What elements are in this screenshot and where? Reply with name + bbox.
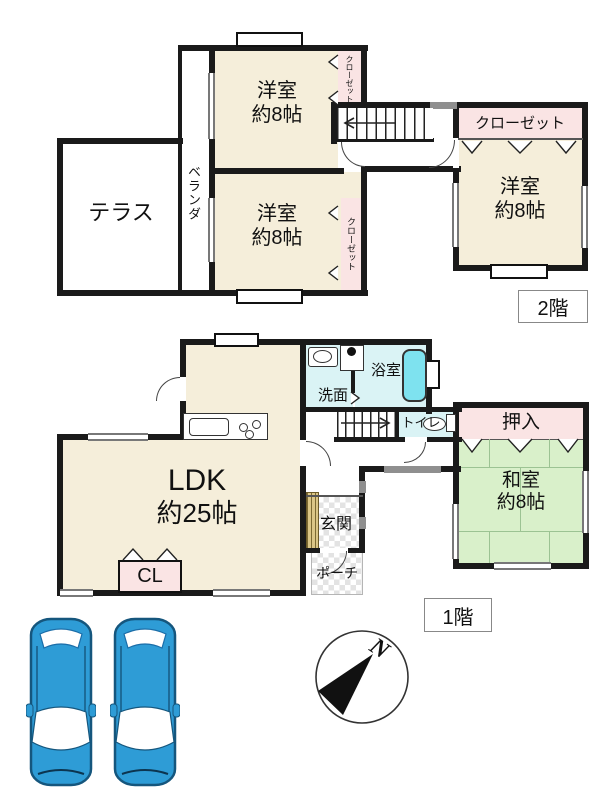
washing-machine-knob-icon (347, 347, 356, 356)
car-icon (26, 616, 96, 788)
room-name: 洋室 (257, 203, 297, 227)
washroom-label: 洗面 (310, 387, 356, 405)
window (452, 504, 459, 559)
window (208, 198, 215, 262)
porch-label: ポーチ (312, 565, 362, 581)
tatami-line (549, 531, 550, 563)
wall (334, 437, 398, 442)
window (452, 183, 459, 247)
window (581, 186, 588, 248)
wall (453, 102, 588, 108)
stairs-direction-arrow (338, 416, 396, 430)
room-2f-sw-label: 洋室 約8帖 (235, 203, 319, 251)
room-size: 約8帖 (497, 492, 546, 514)
ldk-label: LDK 約25帖 (138, 466, 256, 526)
kitchen-sink-icon (189, 418, 229, 436)
car-icon (110, 616, 180, 788)
entrance-step-line (306, 495, 363, 497)
wall (453, 402, 589, 408)
toilet-label: トイレ (399, 415, 443, 431)
wall (359, 466, 365, 553)
compass: N (312, 627, 412, 727)
wall (178, 45, 182, 296)
floor-plan: テラス ベランダ 洋室 約8帖 洋室 約8帖 洋室 約8帖 クローゼット クロー… (0, 0, 613, 800)
bathroom-label: 浴室 (361, 362, 411, 380)
sink-bowl-icon (313, 350, 332, 363)
door-arc (341, 142, 365, 167)
wall (300, 339, 306, 595)
stairs-direction-arrow (340, 116, 400, 130)
window (430, 102, 457, 109)
bay-window (236, 289, 303, 304)
window (359, 517, 366, 529)
room-name: 洋室 (257, 80, 297, 104)
wall (57, 138, 183, 144)
closet-2f-nw-label: クローゼット (342, 53, 357, 105)
window (208, 73, 215, 139)
door-arc (306, 441, 331, 466)
cl-label: CL (126, 565, 174, 589)
wall (57, 434, 63, 596)
room-2f-nw-label: 洋室 約8帖 (235, 80, 319, 128)
room-2f-e-label: 洋室 約8帖 (478, 176, 562, 224)
compass-circle (316, 631, 408, 723)
window (494, 562, 551, 570)
closet-2f-e-label: クローゼット (470, 114, 570, 134)
bay-window (236, 32, 303, 47)
window (582, 471, 589, 533)
wall (361, 166, 461, 172)
room-size: 約25帖 (157, 498, 238, 529)
window (359, 481, 366, 493)
bay-window (490, 264, 548, 279)
tatami-line (459, 531, 583, 532)
window (88, 433, 148, 441)
terrace-label: テラス (72, 198, 170, 228)
room-name: 洋室 (500, 176, 540, 200)
toilet-tank-icon (446, 414, 456, 432)
stove-burner-icon (252, 420, 261, 429)
window (60, 589, 93, 597)
window (384, 466, 441, 473)
washitsu-label: 和室 約8帖 (479, 468, 563, 516)
tatami-line (489, 531, 490, 563)
folding-door-marks (459, 437, 583, 454)
bay-window (214, 333, 259, 347)
stove-burner-icon (245, 430, 254, 439)
folding-door-marks (458, 139, 583, 156)
floor2-badge: 2階 (518, 290, 588, 323)
room-size: 約8帖 (251, 227, 302, 251)
folding-door-marks (119, 547, 181, 562)
veranda-label: ベランダ (185, 145, 202, 241)
room-size: 約8帖 (494, 200, 545, 224)
folding-door-marks (327, 202, 340, 286)
room-size: 約8帖 (251, 104, 302, 128)
floor1-badge: 1階 (424, 598, 492, 632)
entrance-label: 玄関 (313, 516, 359, 534)
oshiire-label: 押入 (481, 413, 561, 433)
door-arc (429, 140, 455, 168)
wall (57, 138, 63, 296)
door-opening (180, 377, 186, 401)
wall (361, 166, 367, 290)
room-name: 和室 (502, 470, 540, 492)
wall (361, 45, 367, 108)
bathroom-window (425, 360, 440, 389)
closet-2f-sw-label: クローゼット (344, 203, 359, 285)
window (213, 589, 270, 597)
folding-door-marks (327, 53, 340, 107)
wall (209, 168, 344, 174)
door-arc (404, 442, 426, 463)
door-arc (156, 377, 180, 401)
room-name: LDK (168, 463, 226, 498)
